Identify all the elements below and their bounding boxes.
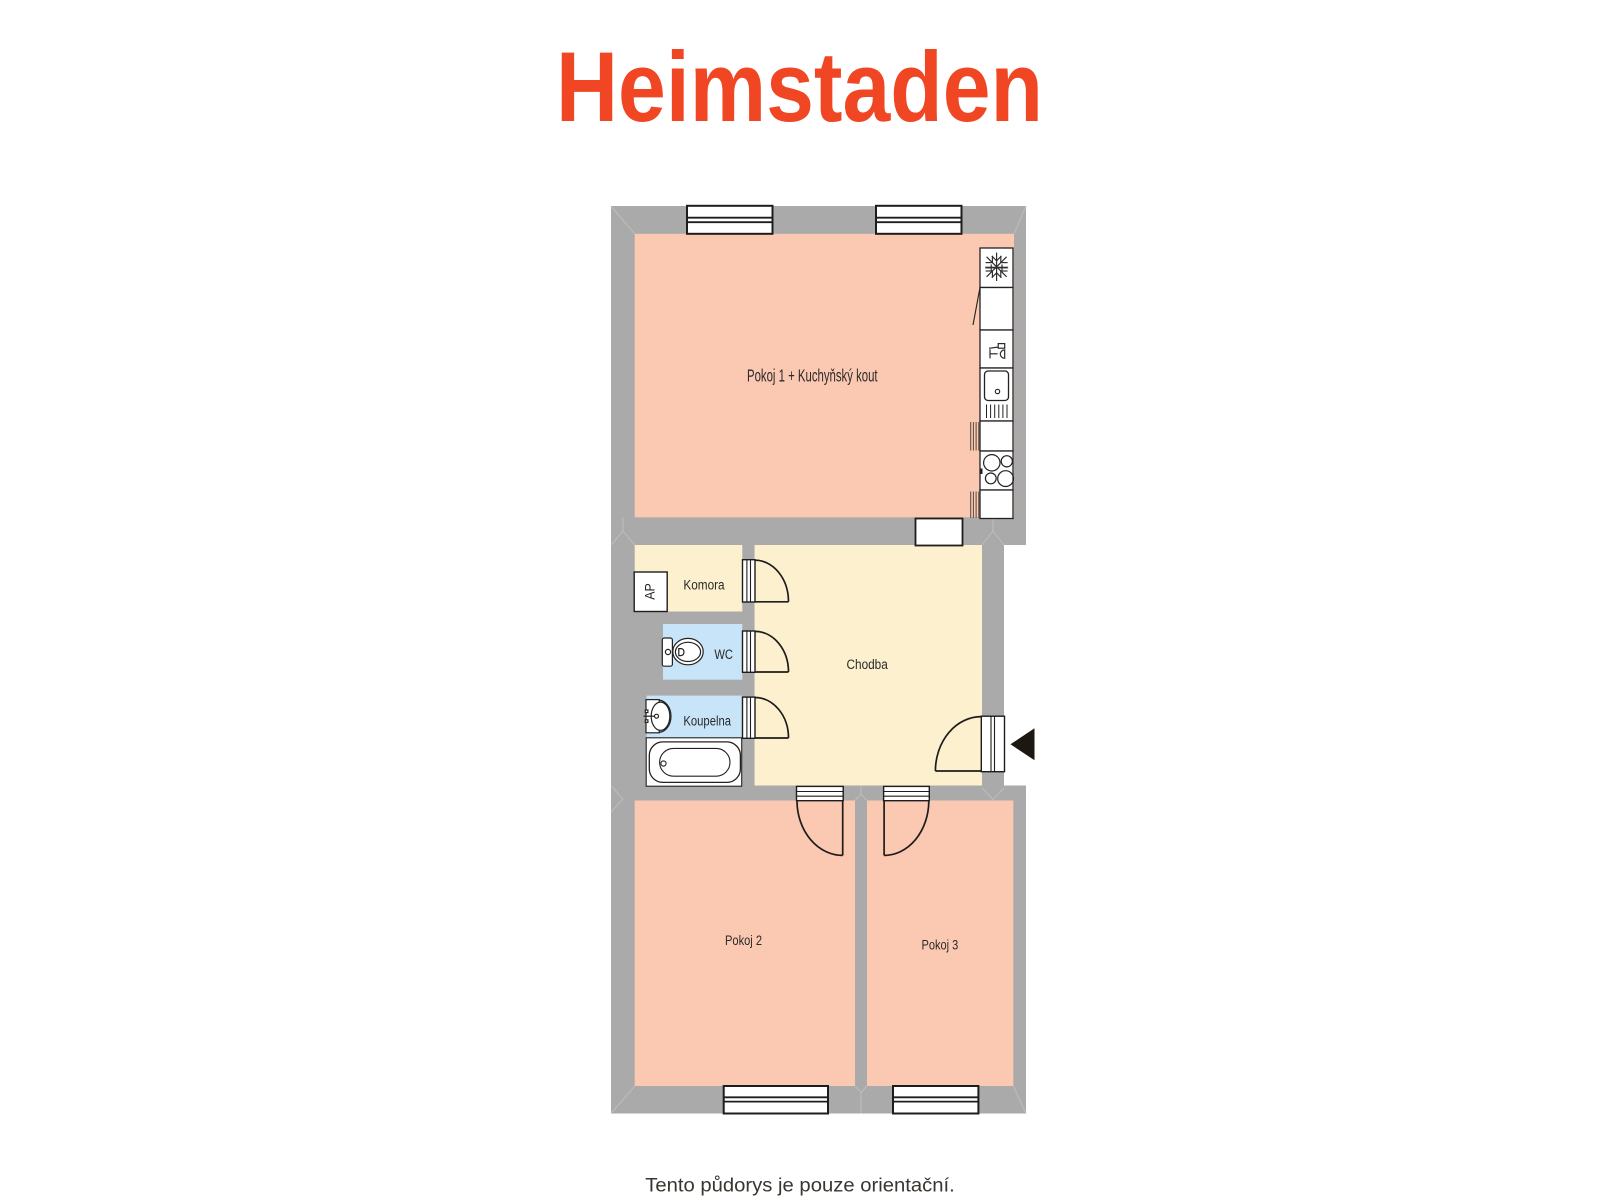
svg-text:AP: AP	[643, 583, 659, 600]
svg-text:Chodba: Chodba	[847, 657, 888, 673]
svg-text:Pokoj 1 + Kuchyňský kout: Pokoj 1 + Kuchyňský kout	[747, 367, 878, 386]
svg-text:Heimstaden: Heimstaden	[556, 31, 1043, 142]
svg-text:Pokoj 2: Pokoj 2	[725, 933, 762, 949]
svg-text:Komora: Komora	[683, 577, 724, 593]
svg-text:WC: WC	[714, 647, 733, 663]
svg-text:Koupelna: Koupelna	[683, 713, 731, 729]
svg-text:Tento půdorys je pouze orienta: Tento půdorys je pouze orientační.	[645, 1176, 955, 1197]
svg-text:Pokoj 3: Pokoj 3	[922, 938, 959, 954]
